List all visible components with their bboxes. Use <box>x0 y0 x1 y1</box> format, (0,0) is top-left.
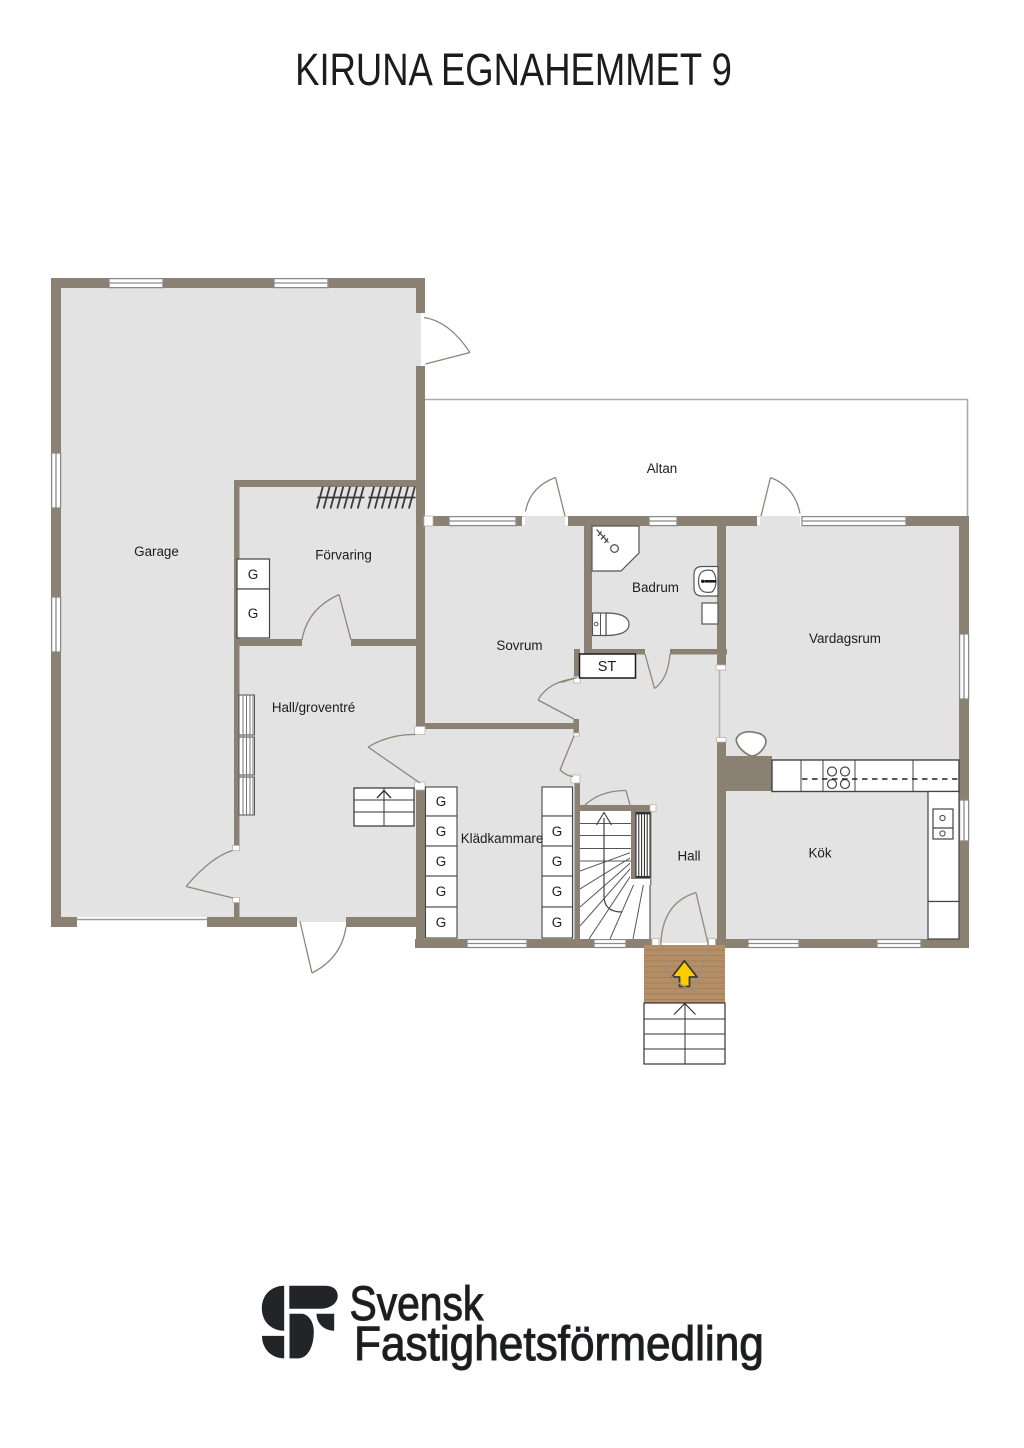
svg-text:Garage: Garage <box>134 544 179 559</box>
svg-text:G: G <box>436 915 447 930</box>
svg-text:KIRUNA EGNAHEMMET 9: KIRUNA EGNAHEMMET 9 <box>295 44 732 95</box>
svg-text:G: G <box>552 824 563 839</box>
svg-text:G: G <box>248 606 259 621</box>
svg-text:G: G <box>436 794 447 809</box>
svg-text:Altan: Altan <box>647 461 678 476</box>
svg-text:G: G <box>248 567 259 582</box>
svg-text:Vardagsrum: Vardagsrum <box>809 631 881 646</box>
svg-text:G: G <box>552 884 563 899</box>
svg-text:Kök: Kök <box>808 846 831 861</box>
svg-text:Klädkammare: Klädkammare <box>461 831 544 846</box>
svg-text:Sovrum: Sovrum <box>496 638 542 653</box>
svg-text:Förvaring: Förvaring <box>315 548 372 563</box>
svg-text:G: G <box>436 854 447 869</box>
svg-text:G: G <box>552 854 563 869</box>
svg-text:Hall: Hall <box>677 849 700 864</box>
svg-text:G: G <box>436 884 447 899</box>
svg-text:G: G <box>552 915 563 930</box>
svg-text:G: G <box>436 824 447 839</box>
svg-text:Hall/groventré: Hall/groventré <box>272 700 355 715</box>
svg-text:Fastighetsförmedling: Fastighetsförmedling <box>354 1316 764 1370</box>
svg-text:ST: ST <box>598 659 617 675</box>
svg-text:Badrum: Badrum <box>632 580 679 595</box>
